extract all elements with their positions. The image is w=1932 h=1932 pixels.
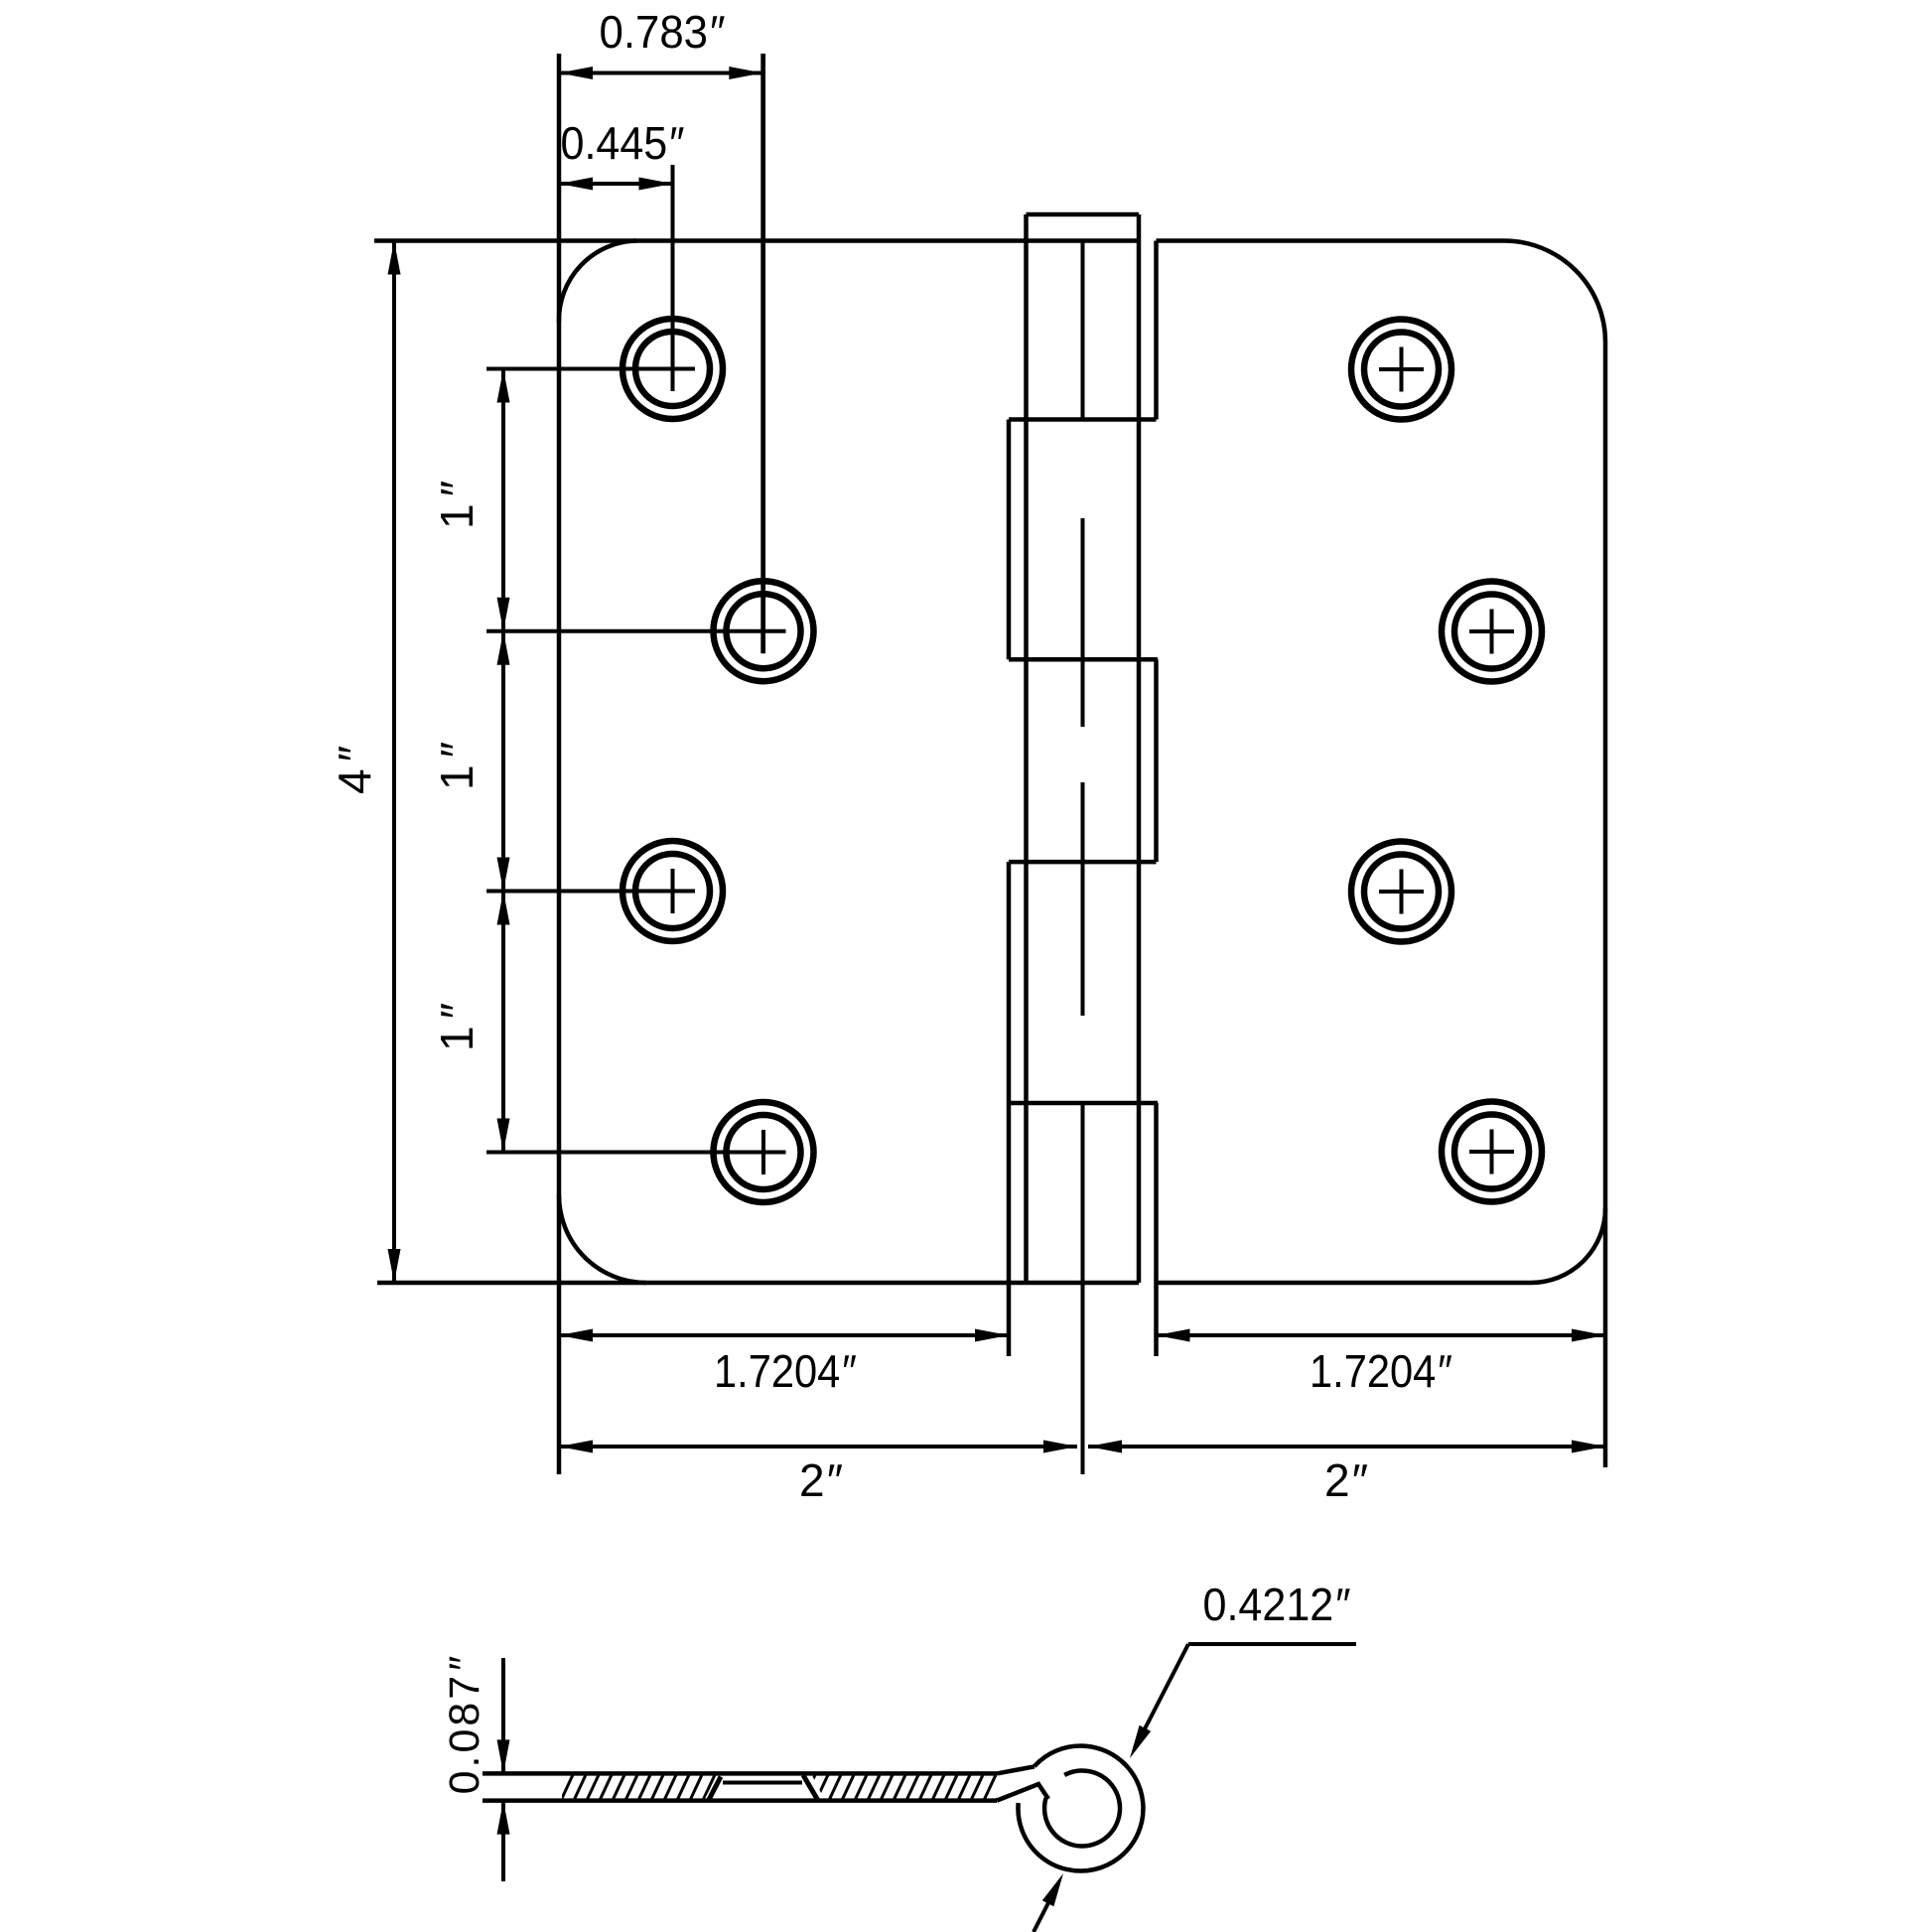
svg-text:1.7204″: 1.7204″	[714, 1345, 857, 1397]
svg-text:1.7204″: 1.7204″	[1310, 1345, 1452, 1397]
svg-text:2″: 2″	[1324, 1454, 1368, 1506]
svg-text:0.087″: 0.087″	[441, 1655, 488, 1795]
svg-text:1″: 1″	[431, 478, 483, 529]
svg-text:2″: 2″	[799, 1454, 843, 1506]
svg-text:4″: 4″	[329, 743, 380, 794]
svg-text:1″: 1″	[431, 1000, 483, 1051]
svg-text:0.783″: 0.783″	[600, 6, 726, 58]
svg-text:1″: 1″	[431, 739, 483, 790]
svg-text:0.4212″: 0.4212″	[1203, 1579, 1351, 1630]
svg-text:0.445″: 0.445″	[561, 117, 685, 169]
